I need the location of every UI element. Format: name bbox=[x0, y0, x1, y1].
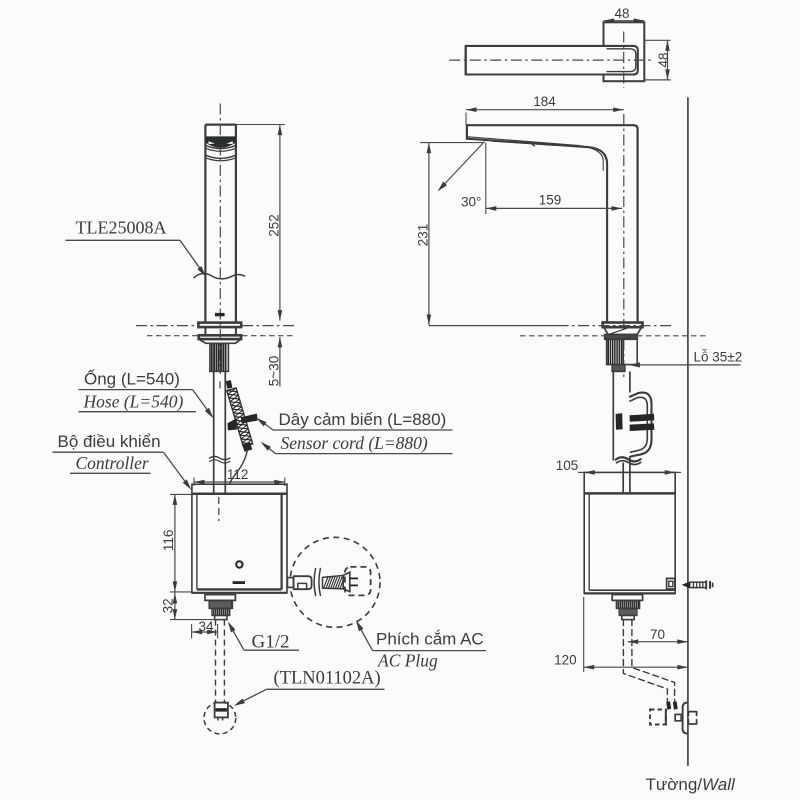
svg-text:48: 48 bbox=[614, 6, 629, 21]
svg-text:Hose (L=540): Hose (L=540) bbox=[83, 392, 184, 412]
svg-text:Lỗ 35±2: Lỗ 35±2 bbox=[694, 349, 743, 364]
svg-text:116: 116 bbox=[161, 530, 176, 552]
svg-text:Tường/Wall: Tường/Wall bbox=[646, 775, 737, 794]
svg-text:Dây cảm biến (L=880): Dây cảm biến (L=880) bbox=[279, 410, 447, 429]
svg-text:120: 120 bbox=[554, 652, 577, 667]
svg-text:5~30: 5~30 bbox=[266, 356, 281, 386]
svg-text:Controller: Controller bbox=[76, 453, 149, 473]
svg-text:30°: 30° bbox=[461, 194, 481, 209]
svg-text:(TLN01102A): (TLN01102A) bbox=[274, 669, 381, 689]
svg-text:AC Plug: AC Plug bbox=[377, 651, 438, 671]
svg-text:231: 231 bbox=[415, 224, 430, 247]
svg-text:112: 112 bbox=[227, 467, 249, 482]
svg-text:252: 252 bbox=[266, 214, 281, 237]
svg-text:Bộ điều khiển: Bộ điều khiển bbox=[58, 432, 161, 451]
svg-text:Sensor cord (L=880): Sensor cord (L=880) bbox=[281, 433, 428, 453]
svg-text:184: 184 bbox=[533, 94, 556, 109]
svg-text:159: 159 bbox=[539, 193, 562, 208]
svg-text:34: 34 bbox=[198, 619, 214, 634]
svg-text:Ống (L=540): Ống (L=540) bbox=[84, 369, 180, 389]
svg-text:70: 70 bbox=[650, 627, 665, 642]
svg-text:48: 48 bbox=[656, 52, 671, 67]
svg-text:32: 32 bbox=[160, 598, 175, 613]
svg-text:G1/2: G1/2 bbox=[252, 632, 290, 653]
svg-text:105: 105 bbox=[556, 458, 579, 473]
svg-text:Phích cắm AC: Phích cắm AC bbox=[376, 630, 484, 649]
svg-text:TLE25008A: TLE25008A bbox=[76, 218, 167, 238]
